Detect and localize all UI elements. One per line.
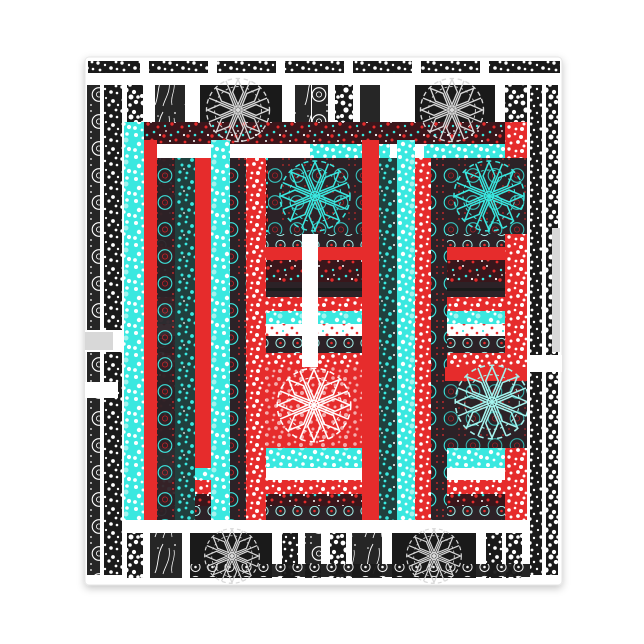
notepad-artwork [0, 0, 644, 644]
overlay-plaid-square [124, 122, 529, 520]
notepad-product-image [0, 0, 644, 644]
top-border-strip [88, 60, 560, 74]
